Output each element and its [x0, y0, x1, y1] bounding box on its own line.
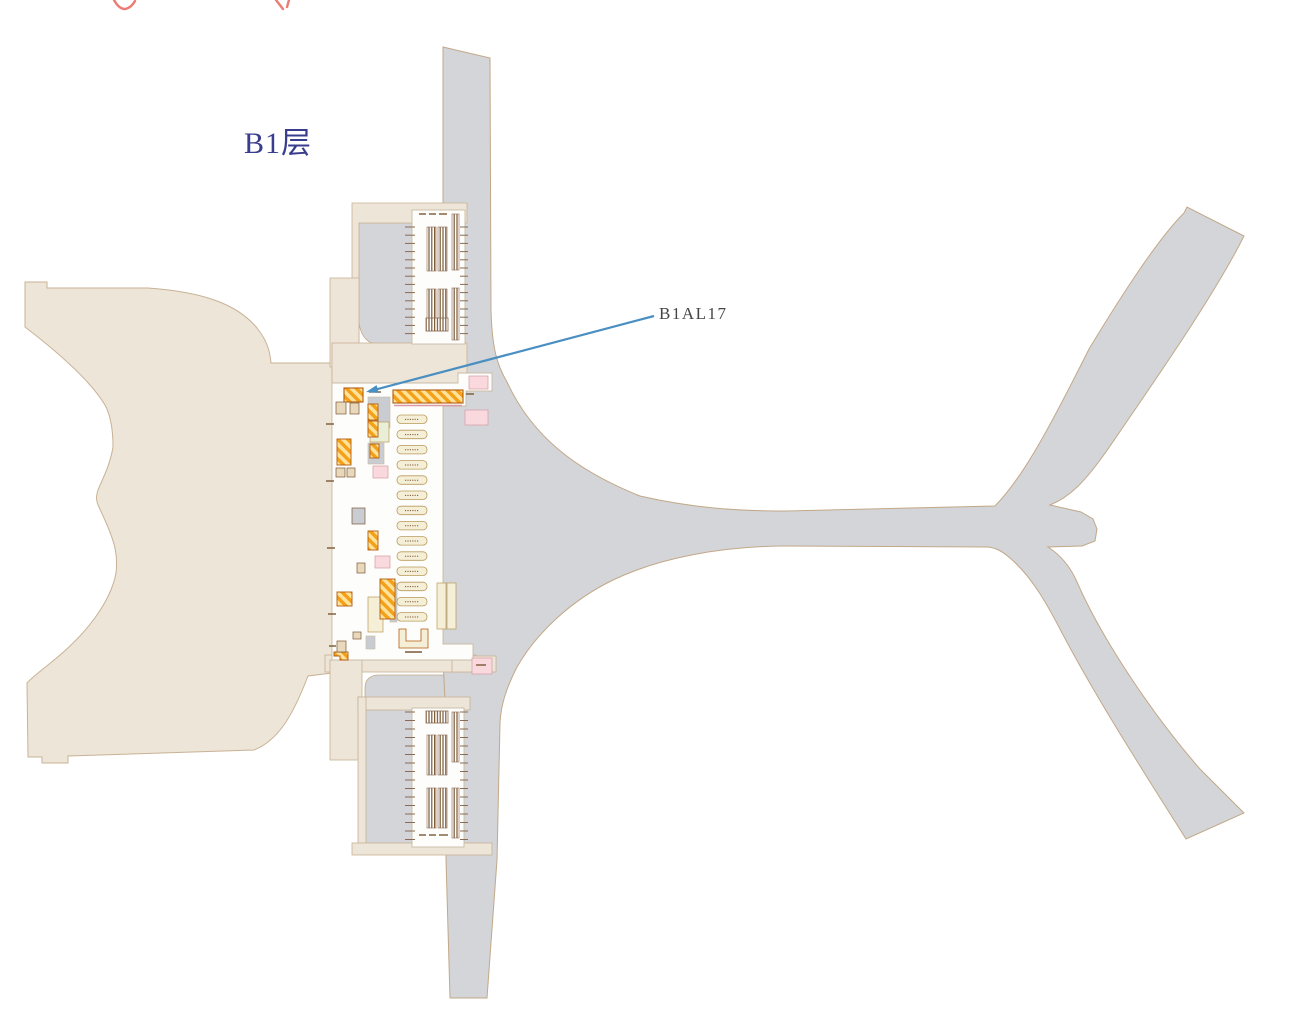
floor-map-viewer: B1层 B1AL17 [0, 0, 1311, 1028]
label-pill [397, 491, 427, 500]
upper-parking-area [405, 210, 468, 344]
highlighted-stall-B1AL17[interactable] [344, 388, 363, 402]
label-pill [397, 506, 427, 515]
label-pill [397, 582, 427, 591]
roadway-network [443, 47, 1244, 998]
lower-parking-area [405, 708, 468, 847]
label-pill [397, 521, 427, 530]
cropped-text-fragment [114, 0, 289, 9]
label-pill [397, 567, 427, 576]
label-pill [397, 415, 427, 424]
b1-floor-map [0, 0, 1311, 1028]
label-pill [397, 476, 427, 485]
hatched-bar [393, 390, 463, 403]
label-pill [397, 430, 427, 439]
stall-annotation-label[interactable]: B1AL17 [659, 304, 728, 324]
escalator-symbol [426, 711, 448, 723]
label-pill [397, 597, 427, 606]
label-pill [397, 461, 427, 470]
terminal-building [25, 282, 332, 763]
label-pill [397, 613, 427, 622]
label-pill [397, 537, 427, 546]
escalator-symbol [426, 318, 448, 331]
label-pill [397, 445, 427, 454]
label-pill [397, 552, 427, 561]
floor-title: B1层 [244, 118, 312, 162]
